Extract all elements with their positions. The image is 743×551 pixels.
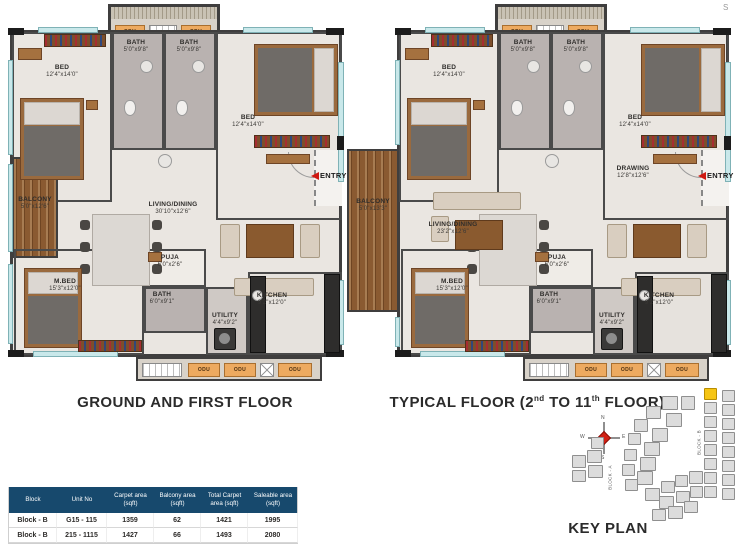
window xyxy=(725,62,731,182)
block-b-label: BLOCK - B xyxy=(697,425,702,461)
room-label-bed-2: BED12'4"x14'0" xyxy=(232,114,264,130)
room-name: BATH xyxy=(514,39,532,46)
keyplan-unit xyxy=(722,418,735,430)
keyplan-unit xyxy=(591,437,604,449)
room-name: M.BED xyxy=(441,278,463,285)
room-label-bath-3: BATH6'0"x9'1" xyxy=(537,291,562,307)
keyplan-unit-highlighted xyxy=(704,388,717,400)
keyplan-unit xyxy=(704,416,717,428)
keyplan-unit xyxy=(722,488,735,500)
col-header-block: Block xyxy=(9,487,57,513)
washbasin-icon xyxy=(158,154,172,168)
entry-marker: ENTRY xyxy=(311,171,347,180)
room-name: BED xyxy=(55,64,69,71)
room-dims: 5'0"x12'6" xyxy=(18,204,52,212)
entry-label: ENTRY xyxy=(707,171,734,180)
window xyxy=(8,264,13,344)
room-name: BED xyxy=(628,114,642,121)
keyplan-unit xyxy=(704,458,717,470)
room-label-bath-2: BATH5'0"x9'8" xyxy=(177,39,202,55)
plan-title-ground-first: GROUND AND FIRST FLOOR xyxy=(30,394,340,411)
room-name: KITCHEN xyxy=(644,292,674,299)
ledge-hatch xyxy=(111,7,217,19)
room-name: BATH xyxy=(153,291,171,298)
wardrobe-icon xyxy=(431,34,493,47)
keyplan-unit xyxy=(628,433,641,445)
keyplan-unit xyxy=(624,449,637,461)
odu-label: ODU xyxy=(665,363,699,377)
keyplan-unit xyxy=(622,464,635,476)
compass-w: W xyxy=(580,434,585,440)
keyplan-unit xyxy=(652,428,668,442)
odu-label: ODU xyxy=(575,363,607,377)
area-table: Block Unit No Carpet area (sqft) Balcony… xyxy=(8,487,298,544)
keyplan-unit xyxy=(588,465,603,478)
room-label-utility: UTILITY4'4"x9'2" xyxy=(212,312,238,328)
room-dims: 12'4"x14'0" xyxy=(619,122,651,130)
chair-icon xyxy=(539,220,549,230)
sofa-icon xyxy=(433,192,521,210)
room-balcony xyxy=(347,149,399,312)
room-label-bed-2: BED12'4"x14'0" xyxy=(619,114,651,130)
room-name: UTILITY xyxy=(599,312,625,319)
keyplan-unit xyxy=(722,446,735,458)
window xyxy=(8,164,13,252)
double-bed-icon xyxy=(641,44,725,116)
keyplan-unit xyxy=(572,455,586,468)
compass-n: N xyxy=(601,415,605,421)
keyplan-unit xyxy=(644,442,660,456)
desk-icon xyxy=(18,48,42,60)
washbasin-icon xyxy=(579,60,592,73)
keyplan-unit xyxy=(690,486,703,498)
toilet-icon xyxy=(511,100,523,116)
dining-table-icon xyxy=(92,214,150,286)
window xyxy=(243,27,313,33)
keyplan-unit xyxy=(704,430,717,442)
keyplan-unit xyxy=(722,460,735,472)
entry-arrow-icon xyxy=(698,172,706,180)
chair-icon xyxy=(80,220,90,230)
dresser-icon xyxy=(266,154,310,164)
toilet-icon xyxy=(563,100,575,116)
room-label-living: LIVING/DINING30'10"x12'6" xyxy=(149,201,198,217)
wall-block xyxy=(8,350,24,357)
room-name: BALCONY xyxy=(18,196,52,203)
room-name: DRAWING xyxy=(617,165,650,172)
plan-ground-first-floor: ODU ODU ODU ODU ODU xyxy=(8,2,348,385)
room-label-master-bed: M.BED15'3"x12'0" xyxy=(436,278,468,294)
room-dims: 9'2"x12'0" xyxy=(644,300,674,308)
keyplan-unit xyxy=(587,450,602,463)
room-name: M.BED xyxy=(54,278,76,285)
col-header-carpet-area: Carpet area (sqft) xyxy=(107,487,154,513)
washbasin-icon xyxy=(140,60,153,73)
keyplan-unit xyxy=(661,481,675,493)
double-bed-icon xyxy=(254,44,338,116)
room-dims: 6'0"x2'6" xyxy=(545,262,570,270)
room-name: BATH xyxy=(540,291,558,298)
kitchen-counter-icon xyxy=(250,276,266,353)
cell-unit-no: G15 - 115 xyxy=(57,513,107,528)
nightstand-icon xyxy=(473,100,485,110)
wardrobe-icon xyxy=(465,340,529,352)
keyplan-unit xyxy=(572,470,586,482)
room-label-balcony: BALCONY5'0"x12'6" xyxy=(18,196,52,212)
window xyxy=(395,60,400,145)
shaft-x-box xyxy=(260,363,274,377)
odu-label: ODU xyxy=(188,363,220,377)
washbasin-icon xyxy=(192,60,205,73)
keyplan-unit xyxy=(625,479,638,491)
room-dims: 5'0"x13'3" xyxy=(356,206,390,214)
keyplan-unit xyxy=(704,402,717,414)
room-name: BATH xyxy=(180,39,198,46)
room-dims: 5'0"x9'8" xyxy=(564,47,589,55)
room-label-balcony: BALCONY5'0"x13'3" xyxy=(356,198,390,214)
keyplan-unit xyxy=(637,471,653,485)
washing-machine-icon xyxy=(214,328,236,350)
room-label-puja: PUJA6'0"x2'6" xyxy=(158,254,183,270)
washbasin-icon xyxy=(545,154,559,168)
room-label-bath-3: BATH6'0"x9'1" xyxy=(150,291,175,307)
cell-total-carpet: 1493 xyxy=(201,528,248,543)
room-name: PUJA xyxy=(161,254,179,261)
room-label-kitchen: KITCHEN9'2"x12'0" xyxy=(257,292,287,308)
compass-e: E xyxy=(622,434,625,440)
armchair-icon xyxy=(300,224,320,258)
wall-block xyxy=(395,350,411,357)
window xyxy=(395,317,400,347)
keyplan-unit xyxy=(704,486,717,498)
keyplan-unit xyxy=(722,474,735,486)
window xyxy=(8,60,13,155)
wall-block xyxy=(8,28,24,35)
room-name: BALCONY xyxy=(356,198,390,205)
washbasin-icon xyxy=(527,60,540,73)
room-name: UTILITY xyxy=(212,312,238,319)
wardrobe-icon xyxy=(78,340,142,352)
table-header-row: Block Unit No Carpet area (sqft) Balcony… xyxy=(9,487,297,513)
room-label-drawing: DRAWING12'8"x12'6" xyxy=(617,165,650,181)
cell-block: Block - B xyxy=(9,513,57,528)
kitchen-counter-icon xyxy=(637,276,653,353)
wardrobe-icon xyxy=(254,135,330,148)
col-header-balcony-area: Balcony area (sqft) xyxy=(154,487,201,513)
room-dims: 12'4"x14'0" xyxy=(46,72,78,80)
room-dims: 6'0"x9'1" xyxy=(150,299,175,307)
keyplan-unit xyxy=(689,471,703,484)
keyplan-unit xyxy=(640,457,656,471)
room-label-bed-1: BED12'4"x14'0" xyxy=(433,64,465,80)
room-dims: 30'10"x12'6" xyxy=(149,209,198,217)
cell-unit-no: 215 - 1115 xyxy=(57,528,107,543)
cell-balcony-area: 62 xyxy=(154,513,201,528)
room-dims: 15'3"x12'0" xyxy=(436,286,468,294)
nightstand-icon xyxy=(86,100,98,110)
wall-block xyxy=(713,28,731,35)
window xyxy=(425,27,485,33)
chair-icon xyxy=(152,220,162,230)
toilet-icon xyxy=(124,100,136,116)
room-dims: 5'0"x9'8" xyxy=(511,47,536,55)
cell-carpet-area: 1359 xyxy=(107,513,154,528)
room-name: PUJA xyxy=(548,254,566,261)
wardrobe-icon xyxy=(641,135,717,148)
washing-machine-icon xyxy=(601,328,623,350)
wall-block xyxy=(395,28,411,35)
cell-saleable-area: 1995 xyxy=(248,513,298,528)
room-dims: 23'2"x12'6" xyxy=(429,229,478,237)
room-dims: 6'0"x9'1" xyxy=(537,299,562,307)
keyplan-unit xyxy=(722,432,735,444)
louver-panel xyxy=(529,363,569,377)
keyplan-unit xyxy=(668,506,683,519)
wall-block xyxy=(326,28,344,35)
keyplan-unit xyxy=(681,396,695,410)
coffee-table-icon xyxy=(246,224,294,258)
keyplan-unit xyxy=(666,413,682,427)
key-plan-title: KEY PLAN xyxy=(558,520,658,537)
odu-ledge-bottom: ODU ODU ODU xyxy=(523,357,709,381)
cell-carpet-area: 1427 xyxy=(107,528,154,543)
keyplan-unit xyxy=(704,472,717,484)
room-name: KITCHEN xyxy=(257,292,287,299)
keyplan-unit xyxy=(652,509,666,521)
floor-plan-sheet: S ODU ODU ODU ODU ODU xyxy=(0,0,743,551)
cell-saleable-area: 2080 xyxy=(248,528,298,543)
room-name: LIVING/DINING xyxy=(149,201,198,208)
keyplan-unit xyxy=(646,406,661,419)
room-label-bath-1: BATH5'0"x9'8" xyxy=(511,39,536,55)
keyplan-unit xyxy=(722,404,735,416)
keyplan-unit xyxy=(675,475,688,487)
col-header-saleable-area: Saleable area (sqft) xyxy=(248,487,298,513)
double-bed-icon xyxy=(407,98,471,180)
cell-total-carpet: 1421 xyxy=(201,513,248,528)
plan-typical-floor: ODU ODU ODU ODU ODU xyxy=(345,2,743,385)
coffee-table-icon xyxy=(633,224,681,258)
room-dims: 6'0"x2'6" xyxy=(158,262,183,270)
cell-block: Block - B xyxy=(9,528,57,543)
room-label-bath-1: BATH5'0"x9'8" xyxy=(124,39,149,55)
shaft-x-box xyxy=(647,363,661,377)
double-bed-icon xyxy=(20,98,84,180)
room-label-utility: UTILITY4'4"x9'2" xyxy=(599,312,625,328)
room-dims: 4'4"x9'2" xyxy=(212,320,238,328)
room-dims: 9'2"x12'0" xyxy=(257,300,287,308)
room-dims: 5'0"x9'8" xyxy=(124,47,149,55)
odu-ledge-bottom: ODU ODU ODU xyxy=(136,357,322,381)
entry-label: ENTRY xyxy=(320,171,347,180)
wall-block xyxy=(337,136,344,150)
room-label-living: LIVING/DINING23'2"x12'6" xyxy=(429,221,478,237)
louver-panel xyxy=(142,363,182,377)
room-dims: 12'4"x14'0" xyxy=(232,122,264,130)
title-text: TO 11 xyxy=(545,394,592,411)
odu-label: ODU xyxy=(278,363,312,377)
room-label-bed-1: BED12'4"x14'0" xyxy=(46,64,78,80)
title-text: TYPICAL FLOOR (2 xyxy=(389,394,533,411)
room-dims: 12'8"x12'6" xyxy=(617,173,650,181)
armchair-icon xyxy=(220,224,240,258)
keyplan-unit xyxy=(634,419,648,432)
room-name: BATH xyxy=(567,39,585,46)
dresser-icon xyxy=(653,154,697,164)
block-a-label: BLOCK - A xyxy=(608,460,613,496)
room-name: BED xyxy=(241,114,255,121)
keyplan-unit xyxy=(722,390,735,402)
armchair-icon xyxy=(607,224,627,258)
table-row: Block - B G15 - 115 1359 62 1421 1995 xyxy=(9,513,297,528)
window xyxy=(38,27,98,33)
desk-icon xyxy=(405,48,429,60)
window xyxy=(630,27,700,33)
room-dims: 4'4"x9'2" xyxy=(599,320,625,328)
keyplan-unit xyxy=(704,444,717,456)
table-body: Block - B G15 - 115 1359 62 1421 1995 Bl… xyxy=(9,513,297,543)
window xyxy=(338,62,344,182)
plan-title-typical: TYPICAL FLOOR (2nd TO 11th FLOOR) xyxy=(382,394,672,411)
ledge-hatch xyxy=(498,7,604,19)
keyplan-unit xyxy=(662,396,678,410)
armchair-icon xyxy=(687,224,707,258)
chair-icon xyxy=(539,242,549,252)
col-header-unit-no: Unit No xyxy=(57,487,107,513)
table-row: Block - B 215 - 1115 1427 66 1493 2080 xyxy=(9,528,297,543)
cell-balcony-area: 66 xyxy=(154,528,201,543)
room-label-bath-2: BATH5'0"x9'8" xyxy=(564,39,589,55)
room-dims: 5'0"x9'8" xyxy=(177,47,202,55)
chair-icon xyxy=(80,242,90,252)
keyplan-unit xyxy=(684,501,698,513)
entry-arrow-icon xyxy=(311,172,319,180)
wardrobe-icon xyxy=(44,34,106,47)
keyplan-unit xyxy=(645,488,660,501)
entry-marker: ENTRY xyxy=(698,171,734,180)
title-sup: th xyxy=(592,394,600,403)
kitchen-counter-icon xyxy=(711,274,727,353)
kitchen-counter-icon xyxy=(324,274,340,353)
room-name: LIVING/DINING xyxy=(429,221,478,228)
room-dims: 12'4"x14'0" xyxy=(433,72,465,80)
room-name: BATH xyxy=(127,39,145,46)
room-dims: 15'3"x12'0" xyxy=(49,286,81,294)
odu-label: ODU xyxy=(611,363,643,377)
wall-block xyxy=(724,136,731,150)
room-name: BED xyxy=(442,64,456,71)
room-label-master-bed: M.BED15'3"x12'0" xyxy=(49,278,81,294)
toilet-icon xyxy=(176,100,188,116)
col-header-total-carpet: Total Carpet area (sqft) xyxy=(201,487,248,513)
room-label-kitchen: KITCHEN9'2"x12'0" xyxy=(644,292,674,308)
odu-label: ODU xyxy=(224,363,256,377)
title-sup: nd xyxy=(534,394,545,403)
chair-icon xyxy=(152,242,162,252)
room-label-puja: PUJA6'0"x2'6" xyxy=(545,254,570,270)
